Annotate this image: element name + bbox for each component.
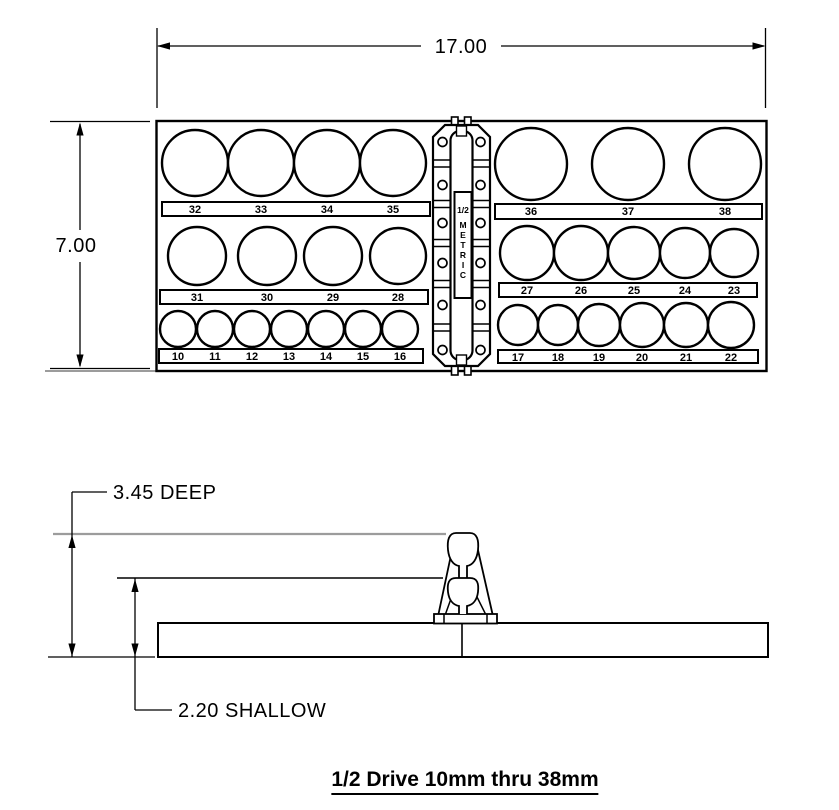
dim-width-label: 17.00 — [435, 36, 488, 58]
rail-system-letter: R — [460, 250, 466, 260]
socket-number: 17 — [512, 352, 524, 364]
socket-cavity — [308, 311, 344, 347]
rail-hole — [476, 346, 485, 355]
side-view: 3.45 DEEP 2.20 SHALLOW — [48, 482, 768, 722]
arrowhead-up — [76, 123, 83, 136]
socket-number: 30 — [261, 292, 273, 304]
arrowhead-down — [68, 644, 75, 657]
rail-hole — [438, 259, 447, 268]
socket-number: 14 — [320, 351, 333, 363]
clip-detent-lower — [448, 578, 478, 614]
rail-tab — [465, 366, 472, 375]
drawing-title: 1/2 Drive 10mm thru 38mm — [331, 768, 598, 795]
rail-system-letter: T — [460, 240, 466, 250]
rail-system-label: METRIC — [459, 220, 466, 280]
socket-number: 10 — [172, 351, 184, 363]
clip-detent-upper — [448, 533, 478, 578]
socket-number: 34 — [321, 204, 334, 216]
socket-number: 31 — [191, 292, 203, 304]
socket-number: 16 — [394, 351, 406, 363]
socket-cavity — [238, 227, 296, 285]
socket-number: 32 — [189, 204, 201, 216]
socket-cavity — [304, 227, 362, 285]
socket-cavity — [554, 226, 608, 280]
socket-cavity — [345, 311, 381, 347]
rail-notch — [457, 126, 467, 136]
socket-number: 11 — [209, 351, 221, 363]
socket-number: 15 — [357, 351, 369, 363]
arrowhead-left — [157, 42, 170, 49]
socket-cavity — [271, 311, 307, 347]
dim-deep-label: 3.45 DEEP — [113, 482, 216, 504]
dimension-height: 7.00 — [45, 122, 156, 372]
socket-cavity — [370, 228, 426, 284]
socket-cavity — [168, 227, 226, 285]
socket-number: 22 — [725, 352, 737, 364]
socket-cavity — [620, 303, 664, 347]
socket-number: 27 — [521, 285, 533, 297]
socket-cavity — [197, 311, 233, 347]
socket-cavity — [664, 303, 708, 347]
hinge-clip-profile — [434, 533, 497, 624]
socket-cavity — [234, 311, 270, 347]
socket-cavity — [708, 302, 754, 348]
socket-number: 35 — [387, 204, 399, 216]
drawing-canvas: 17.00 7.00 32333435363738313029282726252… — [0, 0, 839, 810]
rail-hole — [438, 138, 447, 147]
socket-number: 36 — [525, 206, 537, 218]
socket-cavity — [228, 130, 294, 196]
rail-hole — [438, 219, 447, 228]
rail-notch — [457, 355, 467, 365]
socket-cavity — [498, 305, 538, 345]
socket-cavity — [500, 226, 554, 280]
dimension-width: 17.00 — [157, 28, 766, 108]
rail-hole — [476, 181, 485, 190]
socket-cavity — [162, 130, 228, 196]
socket-number: 28 — [392, 292, 404, 304]
socket-number: 29 — [327, 292, 339, 304]
socket-cavity — [660, 228, 710, 278]
socket-cavity — [160, 311, 196, 347]
socket-cavity — [689, 128, 761, 200]
rail-tab — [452, 366, 459, 375]
rail-hole — [438, 346, 447, 355]
socket-number: 18 — [552, 352, 564, 364]
rail-hole — [476, 138, 485, 147]
socket-number: 20 — [636, 352, 648, 364]
technical-drawing: 17.00 7.00 32333435363738313029282726252… — [0, 0, 839, 810]
rail-system-letter: C — [460, 270, 466, 280]
arrowhead-up — [68, 535, 75, 548]
arrowhead-right — [753, 42, 766, 49]
socket-cavity — [592, 128, 664, 200]
socket-number: 13 — [283, 351, 295, 363]
socket-cavity — [538, 305, 578, 345]
arrowhead-down — [76, 355, 83, 368]
socket-number: 23 — [728, 285, 740, 297]
tray-profile — [158, 623, 768, 657]
socket-number: 26 — [575, 285, 587, 297]
socket-number: 37 — [622, 206, 634, 218]
rail-hole — [476, 219, 485, 228]
rail-system-letter: E — [460, 230, 466, 240]
arrowhead-down — [131, 644, 138, 657]
socket-group-right-row-2: 2726252423 — [499, 226, 758, 297]
socket-number-bar — [498, 350, 758, 363]
rail-hole — [476, 301, 485, 310]
socket-number: 21 — [680, 352, 692, 364]
socket-number: 25 — [628, 285, 640, 297]
dim-height-label: 7.00 — [56, 235, 97, 257]
socket-number: 19 — [593, 352, 605, 364]
socket-cavity — [382, 311, 418, 347]
socket-cavity — [294, 130, 360, 196]
rail-system-letter: M — [459, 220, 466, 230]
hinge-rail: 1/2 METRIC — [433, 117, 490, 375]
socket-number: 12 — [246, 351, 258, 363]
socket-number: 33 — [255, 204, 267, 216]
socket-cavity — [578, 304, 620, 346]
rail-system-letter: I — [462, 260, 464, 270]
socket-number: 38 — [719, 206, 731, 218]
socket-cavity — [495, 128, 567, 200]
socket-cavity — [360, 130, 426, 196]
rail-hole — [438, 301, 447, 310]
dim-shallow-label: 2.20 SHALLOW — [178, 700, 326, 722]
socket-cavity — [710, 229, 758, 277]
socket-number: 24 — [679, 285, 692, 297]
arrowhead-up — [131, 579, 138, 592]
rail-size-label: 1/2 — [457, 205, 469, 215]
socket-group-right-row-1: 363738 — [495, 128, 762, 219]
rail-hole — [438, 181, 447, 190]
socket-cavity — [608, 227, 660, 279]
top-view: 3233343536373831302928272625242310111213… — [157, 117, 767, 375]
rail-hole — [476, 259, 485, 268]
